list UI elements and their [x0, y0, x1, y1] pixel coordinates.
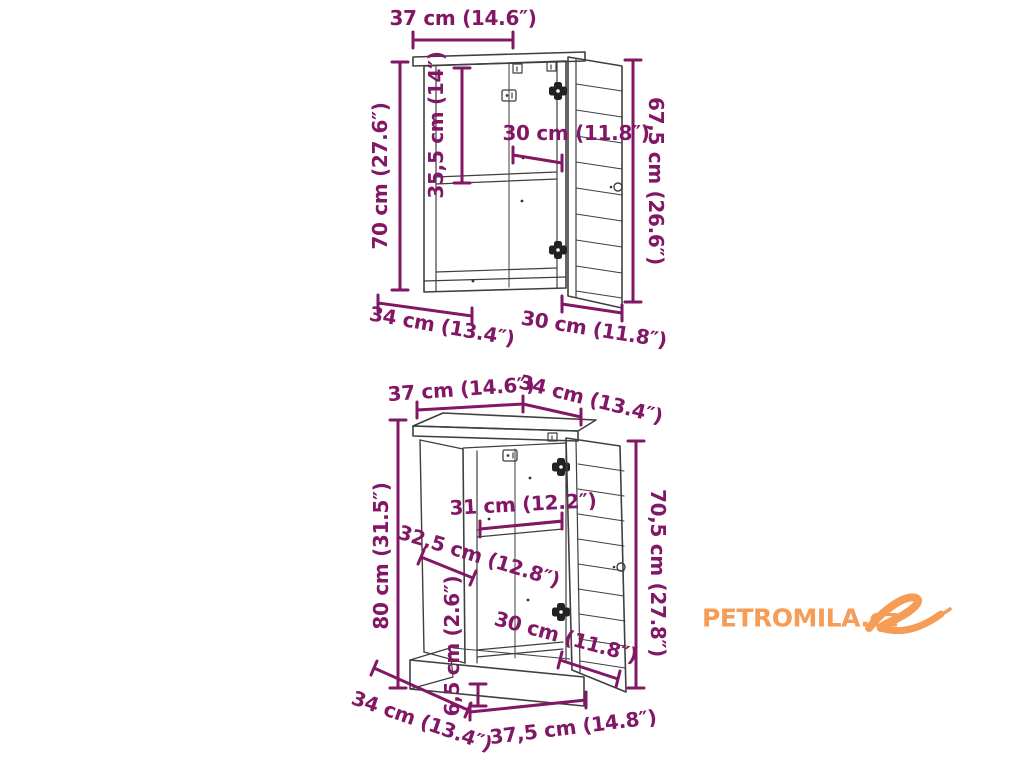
dim-line-b-depth-top: [523, 404, 581, 425]
dim-label-plinth-b: 6,5 cm (2.6″): [442, 576, 462, 717]
dim-line-a-height-left: [392, 62, 408, 290]
dim-label-inner-width-a: 30 cm (11.8″): [502, 123, 649, 143]
dim-line-a-height-right: [625, 60, 641, 302]
top-cabinet-door: [568, 57, 622, 308]
dim-label-height-right-a: 67,5 cm (26.6″): [646, 97, 666, 265]
door-knob-icon: [610, 183, 622, 191]
dim-label-height-left-b: 80 cm (31.5″): [371, 482, 391, 629]
product-dimension-diagram: 37 cm (14.6″) 70 cm (27.6″) 35,5 cm (14″…: [0, 0, 1024, 768]
dim-label-inner-height-a: 35,5 cm (14″): [426, 51, 446, 198]
watermark-brand: PETROMILA.cz: [702, 604, 898, 633]
dim-label-height-right-b: 70,5 cm (27.8″): [648, 489, 668, 657]
dim-line-a-width-top: [413, 32, 513, 48]
dim-line-a-inner-height: [454, 68, 470, 183]
dim-label-top-width-a: 37 cm (14.6″): [389, 8, 536, 28]
dim-label-height-left-a: 70 cm (27.6″): [370, 102, 390, 249]
dim-line-a-inner-width: [513, 147, 562, 171]
hinge-icon: [549, 82, 567, 259]
